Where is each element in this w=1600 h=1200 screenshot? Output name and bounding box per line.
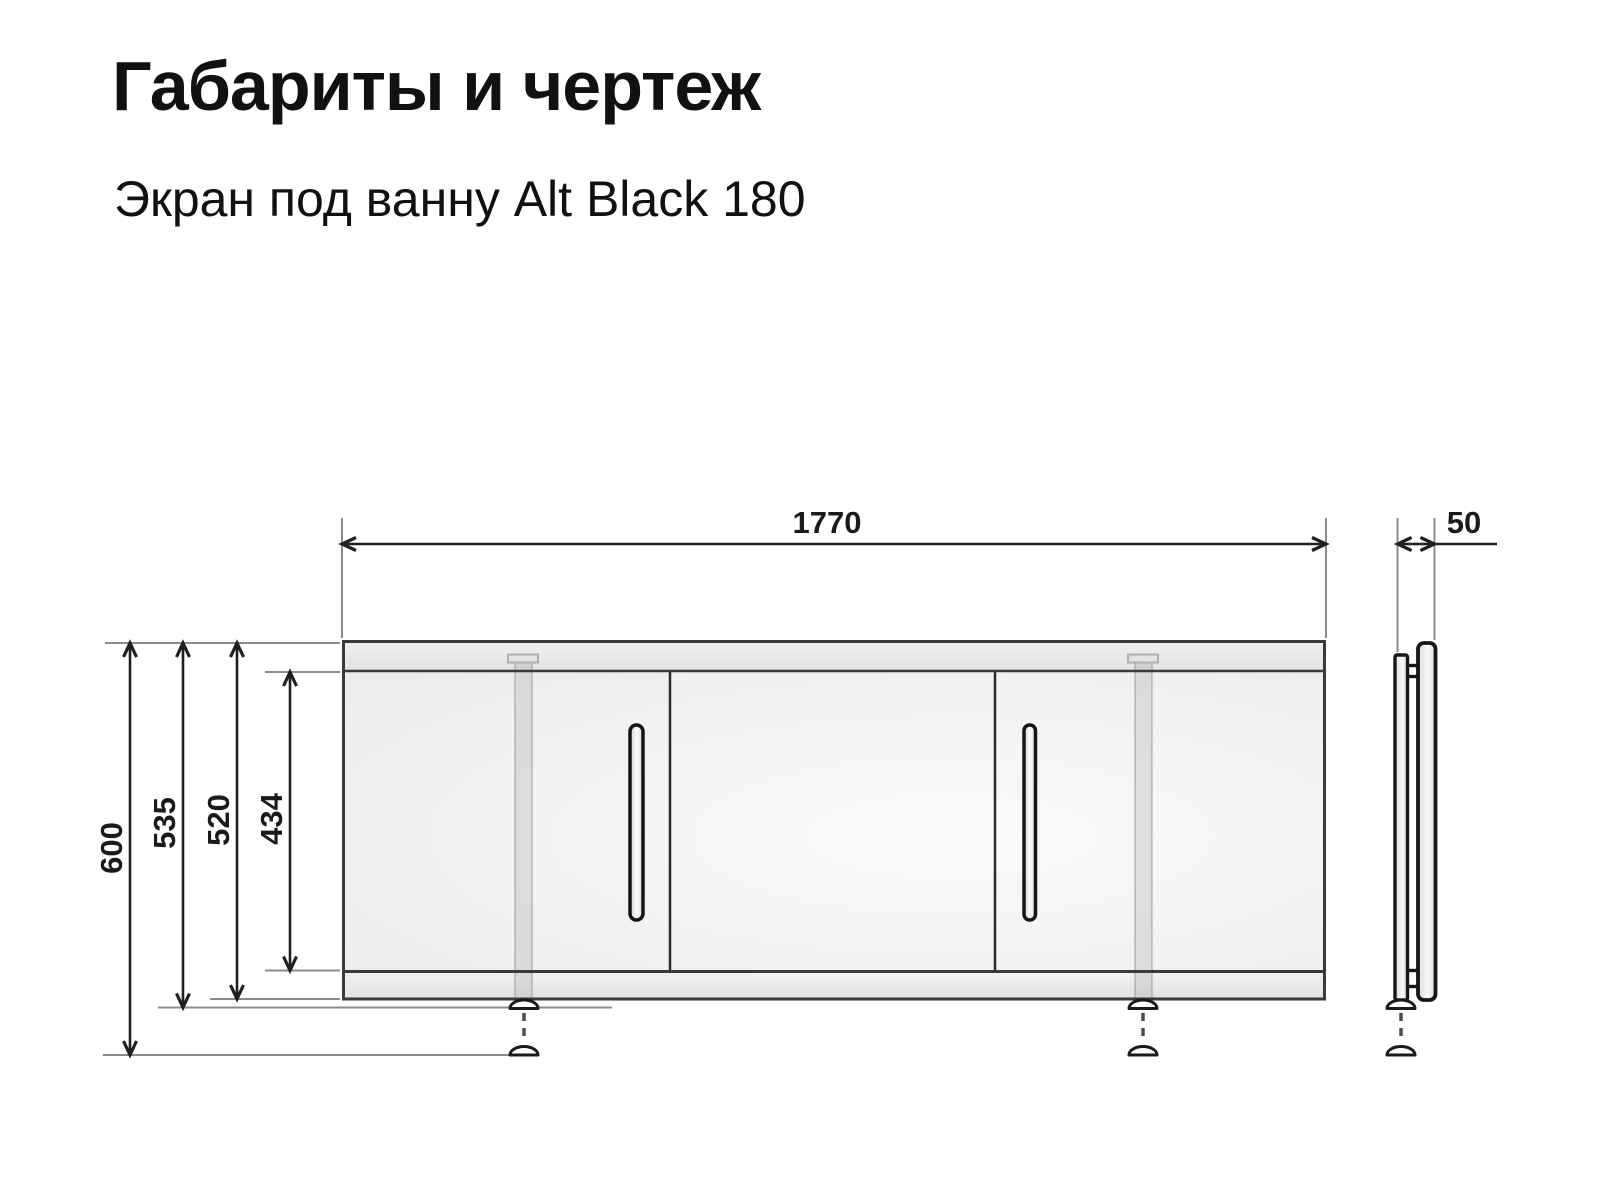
dim-label-overall-height: 600 <box>94 822 129 874</box>
bottom-rail <box>342 970 1326 1000</box>
foot-left-upper <box>510 1000 538 1009</box>
leg-left-screw-head <box>508 655 538 663</box>
front-view <box>342 640 1326 1001</box>
dim-label-width: 1770 <box>793 505 862 540</box>
dim-label-depth: 50 <box>1447 505 1481 540</box>
handle-right <box>1024 725 1036 920</box>
foot-right-upper <box>1129 1000 1157 1009</box>
foot-left-lower <box>510 1047 538 1056</box>
foot-right <box>1129 1000 1157 1055</box>
handle-left <box>630 725 643 920</box>
feet <box>510 1000 1415 1055</box>
dim-label-frame-height: 520 <box>201 794 236 846</box>
side-view <box>1395 643 1436 1000</box>
leg-left-column <box>515 658 532 1001</box>
foot-side-upper <box>1387 1000 1415 1009</box>
dim-label-height-with-foot: 535 <box>147 797 182 849</box>
leg-right-column <box>1135 658 1152 1001</box>
dim-label-door-height: 434 <box>254 792 289 844</box>
foot-side-lower <box>1387 1047 1415 1056</box>
technical-drawing: 1770 50 600 535 520 434 <box>0 0 1600 1200</box>
side-panel-profile <box>1395 655 1408 1000</box>
foot-side <box>1387 1000 1415 1055</box>
side-rail-profile <box>1418 643 1436 1000</box>
foot-right-lower <box>1129 1047 1157 1056</box>
foot-left <box>510 1000 538 1055</box>
leg-right-screw-head <box>1128 655 1158 663</box>
top-rail <box>342 640 1326 672</box>
panel-area <box>342 672 1326 970</box>
page: Габариты и чертеж Экран под ванну Alt Bl… <box>0 0 1600 1200</box>
